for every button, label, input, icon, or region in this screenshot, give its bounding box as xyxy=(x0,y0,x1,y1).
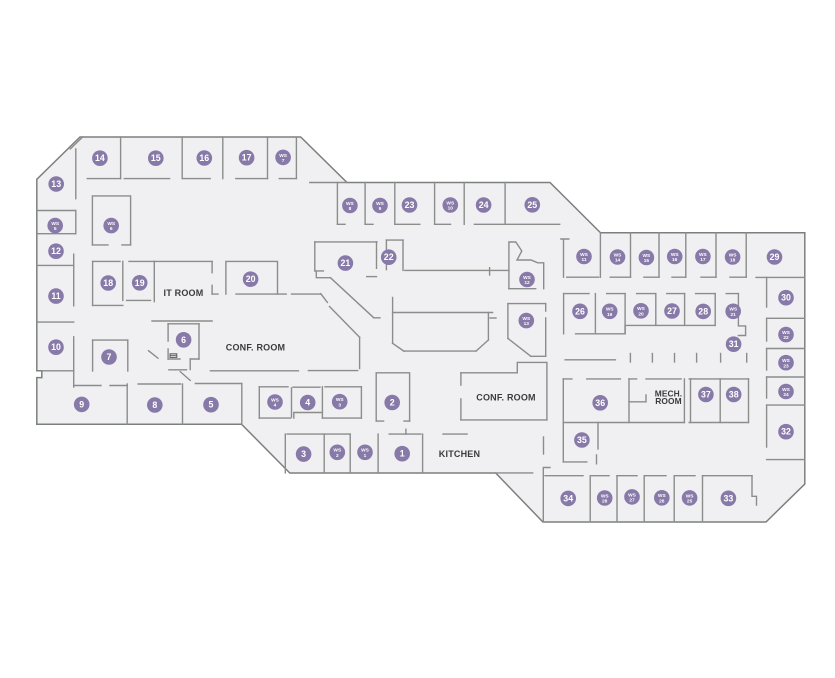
svg-text:WS: WS xyxy=(446,200,455,206)
svg-text:31: 31 xyxy=(729,339,739,349)
svg-text:28: 28 xyxy=(602,499,608,505)
svg-text:12: 12 xyxy=(524,280,530,286)
svg-text:WS: WS xyxy=(606,307,615,313)
svg-text:14: 14 xyxy=(615,258,621,264)
svg-text:5: 5 xyxy=(209,400,214,410)
svg-text:19: 19 xyxy=(607,312,613,318)
svg-text:12: 12 xyxy=(51,246,61,256)
svg-text:26: 26 xyxy=(659,498,665,504)
svg-text:7: 7 xyxy=(107,352,112,362)
svg-text:WS: WS xyxy=(336,397,345,403)
svg-text:19: 19 xyxy=(135,278,145,288)
svg-text:3: 3 xyxy=(301,449,306,459)
svg-text:14: 14 xyxy=(95,153,105,163)
svg-text:6: 6 xyxy=(181,335,186,345)
svg-text:WS: WS xyxy=(580,252,589,258)
svg-text:24: 24 xyxy=(479,200,489,210)
svg-text:17: 17 xyxy=(242,153,252,163)
svg-text:WS: WS xyxy=(523,275,532,281)
svg-text:32: 32 xyxy=(781,427,791,437)
svg-text:16: 16 xyxy=(672,257,678,263)
svg-text:7: 7 xyxy=(282,158,285,164)
svg-text:34: 34 xyxy=(563,493,573,503)
svg-text:36: 36 xyxy=(595,398,605,408)
svg-text:21: 21 xyxy=(731,312,737,318)
svg-text:9: 9 xyxy=(79,399,84,409)
svg-text:WS: WS xyxy=(782,387,791,393)
svg-text:28: 28 xyxy=(698,306,708,316)
svg-text:4: 4 xyxy=(274,403,277,409)
svg-text:WS: WS xyxy=(346,201,355,207)
svg-text:29: 29 xyxy=(770,252,780,262)
svg-text:4: 4 xyxy=(305,398,310,408)
svg-text:8: 8 xyxy=(152,400,157,410)
svg-text:30: 30 xyxy=(781,293,791,303)
svg-text:15: 15 xyxy=(151,153,161,163)
svg-text:5: 5 xyxy=(54,226,57,232)
svg-text:27: 27 xyxy=(629,498,635,504)
svg-text:22: 22 xyxy=(384,252,394,262)
svg-text:WS: WS xyxy=(271,397,280,403)
svg-text:23: 23 xyxy=(405,200,415,210)
svg-text:WS: WS xyxy=(376,201,385,207)
svg-text:11: 11 xyxy=(51,291,60,301)
svg-text:CONF. ROOM: CONF. ROOM xyxy=(226,343,286,353)
svg-text:10: 10 xyxy=(448,206,454,212)
svg-text:WS: WS xyxy=(699,252,708,258)
svg-text:WS: WS xyxy=(686,493,695,499)
svg-text:37: 37 xyxy=(701,390,711,400)
svg-text:WS: WS xyxy=(782,358,791,364)
svg-text:WS: WS xyxy=(361,448,370,454)
svg-text:23: 23 xyxy=(783,363,789,369)
svg-text:WS: WS xyxy=(643,253,652,259)
svg-text:20: 20 xyxy=(638,311,644,317)
svg-text:WS: WS xyxy=(637,306,646,312)
svg-text:26: 26 xyxy=(575,306,585,316)
svg-text:20: 20 xyxy=(246,274,256,284)
svg-text:WS: WS xyxy=(782,330,791,336)
svg-text:25: 25 xyxy=(527,200,537,210)
svg-text:WS: WS xyxy=(51,221,60,227)
svg-text:WS: WS xyxy=(107,221,116,227)
svg-text:2: 2 xyxy=(390,398,395,408)
svg-text:WS: WS xyxy=(601,493,610,499)
svg-text:10: 10 xyxy=(51,342,61,352)
svg-text:17: 17 xyxy=(700,257,706,263)
svg-text:33: 33 xyxy=(724,493,734,503)
svg-text:24: 24 xyxy=(783,392,789,398)
svg-text:KITCHEN: KITCHEN xyxy=(439,449,480,459)
svg-text:WS: WS xyxy=(729,252,738,258)
svg-text:3: 3 xyxy=(338,402,341,408)
svg-text:6: 6 xyxy=(110,226,113,232)
svg-text:IT ROOM: IT ROOM xyxy=(164,288,204,298)
svg-text:21: 21 xyxy=(341,258,351,268)
svg-text:WS: WS xyxy=(729,307,738,313)
svg-text:27: 27 xyxy=(667,306,677,316)
svg-text:CONF. ROOM: CONF. ROOM xyxy=(476,393,536,403)
svg-text:13: 13 xyxy=(524,321,530,327)
svg-text:WS: WS xyxy=(279,153,288,159)
svg-text:9: 9 xyxy=(379,206,382,212)
svg-text:WS: WS xyxy=(522,316,531,322)
svg-text:WS: WS xyxy=(628,492,637,498)
svg-text:15: 15 xyxy=(644,258,650,264)
svg-text:WS: WS xyxy=(671,252,680,258)
svg-text:38: 38 xyxy=(729,390,739,400)
svg-text:WS: WS xyxy=(658,493,667,499)
svg-text:8: 8 xyxy=(349,206,352,212)
svg-text:16: 16 xyxy=(199,153,209,163)
svg-text:18: 18 xyxy=(730,258,736,264)
svg-text:35: 35 xyxy=(577,435,587,445)
svg-text:2: 2 xyxy=(336,453,339,459)
svg-text:22: 22 xyxy=(783,335,789,341)
svg-text:1: 1 xyxy=(364,453,367,459)
svg-text:13: 13 xyxy=(51,179,61,189)
svg-text:1: 1 xyxy=(400,449,405,459)
svg-text:25: 25 xyxy=(687,499,693,505)
svg-text:11: 11 xyxy=(581,257,586,263)
svg-text:18: 18 xyxy=(103,278,113,288)
svg-text:ROOM: ROOM xyxy=(655,396,681,406)
svg-text:WS: WS xyxy=(333,448,342,454)
svg-text:WS: WS xyxy=(614,252,623,258)
